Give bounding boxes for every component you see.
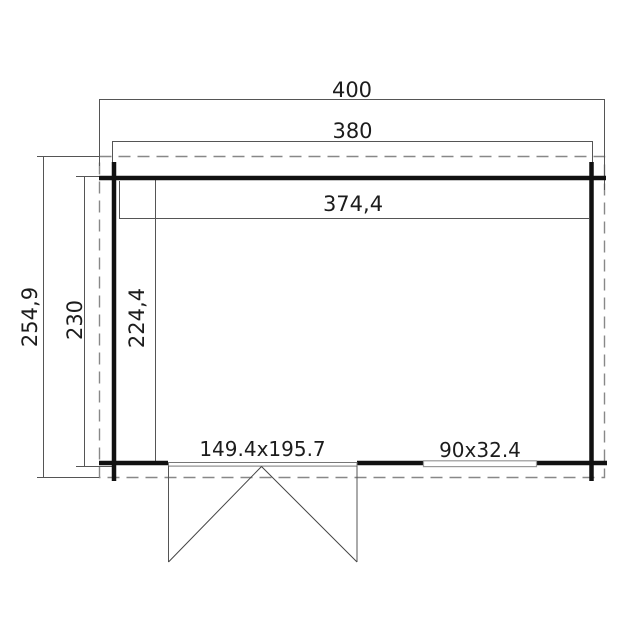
- dimension-outer-depth: 230: [63, 176, 113, 467]
- floor-plan-canvas: 400 380 374,4 254,9 230: [0, 0, 636, 636]
- dim-label-interior-depth: 224,4: [125, 288, 149, 348]
- dim-label-outer-width: 380: [332, 119, 372, 143]
- dimension-interior-width: 374,4: [119, 181, 589, 219]
- window-size-label: 90x32.4: [439, 438, 521, 462]
- dim-label-roof-width: 400: [332, 78, 372, 102]
- door-swing-right: [262, 467, 358, 563]
- dimension-outer-width: 380: [112, 119, 593, 167]
- door-size-label: 149.4x195.7: [199, 437, 325, 461]
- door-swing-left: [169, 467, 262, 563]
- window: 90x32.4: [424, 438, 537, 467]
- dim-label-outer-depth: 230: [63, 300, 87, 340]
- dim-label-interior-width: 374,4: [323, 192, 383, 216]
- door-frame: [169, 463, 358, 467]
- dimension-interior-depth: 224,4: [125, 180, 156, 461]
- dim-label-roof-depth: 254,9: [18, 287, 42, 347]
- floor-plan-drawing: 400 380 374,4 254,9 230: [0, 0, 636, 636]
- door: 149.4x195.7: [169, 437, 358, 562]
